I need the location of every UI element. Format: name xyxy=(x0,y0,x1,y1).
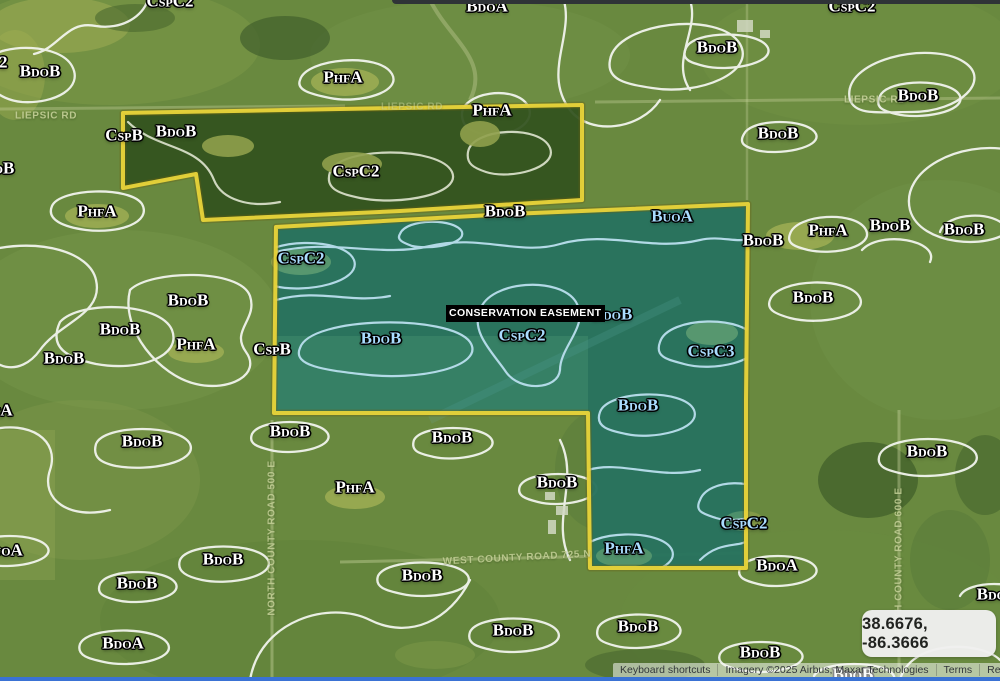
conservation-easement-label: CONSERVATION EASEMENT xyxy=(446,305,605,322)
report-error-link[interactable]: Report a map error xyxy=(979,664,1000,676)
bottom-bar-edge xyxy=(0,677,1000,681)
coordinates-tooltip: 38.6676, -86.3666 xyxy=(862,610,996,657)
satellite-map-art xyxy=(0,0,1000,681)
map-canvas[interactable]: LIEPSIC RDLIEPSIC RDLIEPSIC RDNORTH COUN… xyxy=(0,0,1000,681)
map-attribution: Keyboard shortcuts Imagery ©2025 Airbus,… xyxy=(613,663,1000,677)
top-toolbar-edge xyxy=(392,0,1000,4)
keyboard-shortcuts-link[interactable]: Keyboard shortcuts xyxy=(613,664,717,676)
terms-link[interactable]: Terms xyxy=(936,664,980,676)
imagery-credit: Imagery ©2025 Airbus, Maxar Technologies xyxy=(717,664,935,676)
